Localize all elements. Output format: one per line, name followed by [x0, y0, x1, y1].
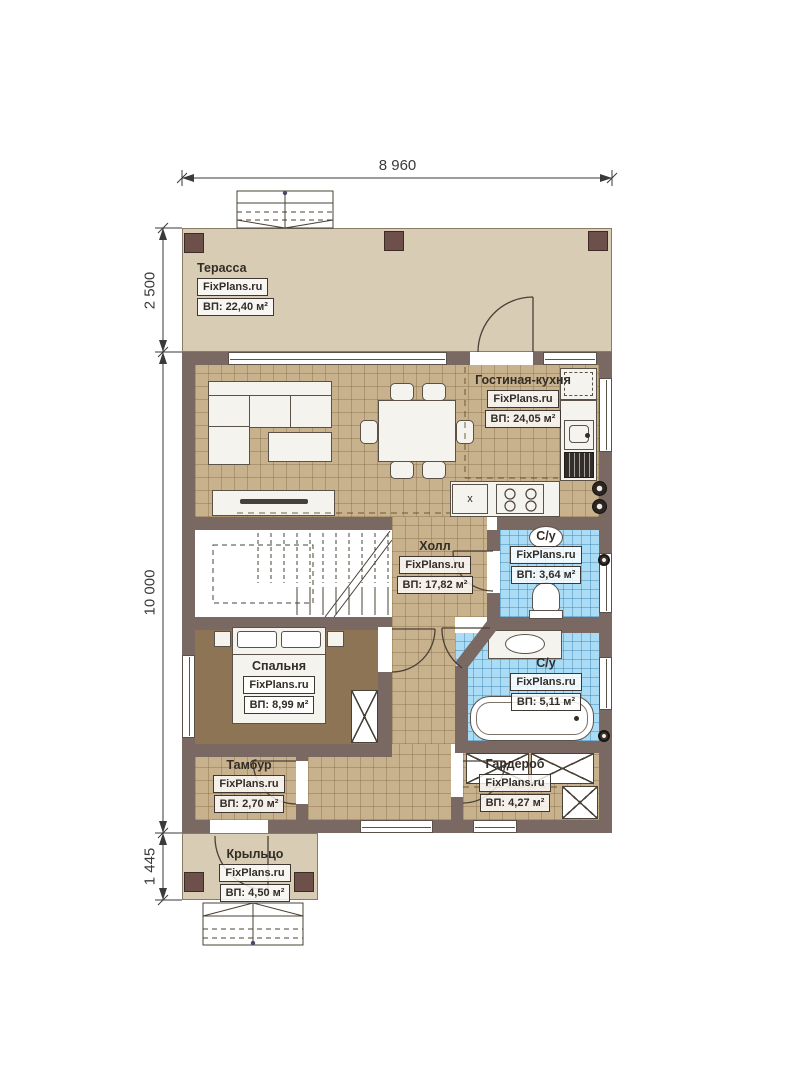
wall-wc-wardrobe: [455, 741, 599, 753]
room-name: Гостиная-кухня: [475, 374, 571, 388]
wardrobe-cabinet: [562, 786, 598, 819]
dining-chair: [360, 420, 378, 444]
door-opening-tambour: [296, 761, 308, 804]
door-opening-bedroom: [378, 627, 392, 672]
wall-exterior-left: [182, 352, 195, 833]
room-name: Тамбур: [226, 759, 271, 773]
room-name: Гардероб: [485, 758, 544, 772]
coffee-table: [268, 432, 332, 462]
room-label-wardrobe: Гардероб FixPlans.ru ВП: 4,27 м²: [470, 758, 560, 812]
nightstand: [214, 631, 231, 647]
porch-steps: [203, 903, 303, 945]
wall-burner: [592, 499, 607, 514]
boiler: x: [452, 484, 488, 514]
dining-chair: [390, 383, 414, 401]
room-name: Холл: [419, 540, 450, 554]
dining-chair: [390, 461, 414, 479]
window-kitchen-right: [599, 378, 612, 452]
room-name: С/у: [536, 657, 555, 671]
room-name: Терасса: [197, 262, 247, 276]
bathtub-drain: [574, 716, 579, 721]
sink-faucet: [585, 433, 590, 438]
room-name: С/у: [536, 530, 555, 544]
wall-burner: [592, 481, 607, 496]
wall-bedroom-bottom: [195, 744, 392, 757]
vanity-basin: [505, 634, 545, 654]
window-wardrobe-bottom: [473, 820, 517, 833]
window-bedroom-left: [182, 655, 195, 738]
toilet-tank: [529, 610, 563, 619]
brand-label: FixPlans.ru: [243, 676, 314, 694]
room-name: Спальня: [252, 660, 306, 674]
dimension-width-top: 8 960: [360, 157, 435, 174]
nightstand: [327, 631, 344, 647]
room-area: ВП: 5,11 м²: [511, 693, 581, 711]
stove-burners: [497, 485, 545, 515]
window-wc-main-right: [599, 657, 612, 710]
room-area: ВП: 2,70 м²: [214, 795, 285, 813]
brand-label: FixPlans.ru: [213, 775, 284, 793]
wall-hall-wc-main: [455, 666, 468, 744]
brand-label: FixPlans.ru: [510, 673, 581, 691]
floor-plan: x: [0, 0, 792, 1080]
room-area: ВП: 4,50 м²: [220, 884, 291, 902]
pillow: [281, 631, 321, 648]
terrace-steps: [237, 191, 333, 228]
tv: [240, 499, 308, 504]
brand-label: FixPlans.ru: [219, 864, 290, 882]
terrace-column: [384, 231, 404, 251]
terrace-column: [588, 231, 608, 251]
porch-column: [184, 872, 204, 892]
room-label-wc-main: С/у FixPlans.ru ВП: 5,11 м²: [505, 657, 587, 711]
brand-label: FixPlans.ru: [197, 278, 268, 296]
room-area: ВП: 3,64 м²: [511, 566, 582, 584]
dimension-porch-depth: 1 445: [142, 839, 159, 895]
terrace-column: [184, 233, 204, 253]
room-area: ВП: 24,05 м²: [485, 410, 562, 428]
bed-fold-line: [233, 654, 325, 655]
dimension-line-left: [155, 223, 182, 905]
pillow: [237, 631, 277, 648]
room-area: ВП: 17,82 м²: [397, 576, 474, 594]
room-area: ВП: 4,27 м²: [480, 794, 551, 812]
door-opening-wardrobe: [451, 757, 463, 797]
wall-living-stairs: [195, 517, 392, 530]
vent: [598, 554, 610, 566]
door-opening-wc-top: [487, 551, 500, 593]
window-kitchen-top: [543, 352, 597, 365]
room-label-hall: Холл FixPlans.ru ВП: 17,82 м²: [395, 540, 475, 594]
brand-label: FixPlans.ru: [399, 556, 470, 574]
sofa-chaise: [208, 426, 250, 465]
dining-table: [378, 400, 456, 462]
dimension-house-depth: 10 000: [142, 562, 159, 624]
room-label-wc-top: С/у FixPlans.ru ВП: 3,64 м²: [505, 530, 587, 584]
sofa-seat: [208, 395, 332, 428]
vent: [598, 730, 610, 742]
room-area: ВП: 22,40 м²: [197, 298, 274, 316]
brand-label: FixPlans.ru: [487, 390, 558, 408]
window-living-top: [228, 352, 447, 365]
dining-chair: [422, 383, 446, 401]
dishwasher: [564, 452, 594, 478]
room-label-terrace: Терасса FixPlans.ru ВП: 22,40 м²: [197, 262, 274, 316]
room-label-porch: Крыльцо FixPlans.ru ВП: 4,50 м²: [205, 848, 305, 902]
room-label-living: Гостиная-кухня FixPlans.ru ВП: 24,05 м²: [468, 374, 578, 428]
dining-chair: [422, 461, 446, 479]
door-opening-terrace: [470, 352, 533, 365]
bedroom-wardrobe-cabinet: [351, 690, 378, 743]
room-name: Крыльцо: [227, 848, 284, 862]
hall-floor-lower: [392, 617, 455, 744]
toilet-bowl: [532, 582, 560, 612]
brand-label: FixPlans.ru: [510, 546, 581, 564]
door-opening-porch: [210, 820, 268, 833]
brand-label: FixPlans.ru: [479, 774, 550, 792]
staircase-floor: [195, 530, 392, 617]
room-label-tambour: Тамбур FixPlans.ru ВП: 2,70 м²: [205, 759, 293, 813]
window-corridor-bottom: [360, 820, 433, 833]
room-label-bedroom: Спальня FixPlans.ru ВП: 8,99 м²: [232, 660, 326, 714]
stove: [496, 484, 544, 514]
dimension-terrace-depth: 2 500: [142, 263, 159, 319]
room-area: ВП: 8,99 м²: [244, 696, 315, 714]
